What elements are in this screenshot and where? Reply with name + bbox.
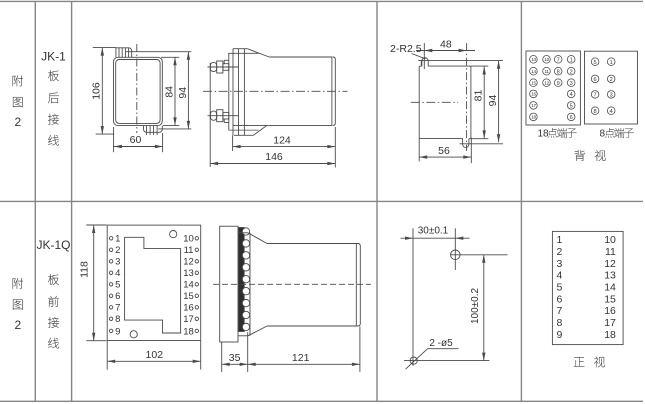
svg-text:12: 12	[544, 80, 549, 85]
svg-text:100±0.2: 100±0.2	[470, 288, 481, 325]
svg-text:2: 2	[557, 246, 563, 258]
svg-text:7: 7	[557, 305, 563, 317]
svg-text:6: 6	[115, 291, 120, 302]
svg-text:15: 15	[183, 291, 194, 302]
svg-text:9: 9	[115, 326, 120, 337]
svg-text:8: 8	[600, 128, 606, 139]
svg-text:118: 118	[78, 261, 90, 278]
svg-text:4: 4	[610, 109, 613, 115]
svg-text:124: 124	[273, 134, 291, 146]
svg-text:1: 1	[570, 57, 573, 63]
svg-text:4: 4	[557, 270, 563, 282]
svg-text:15: 15	[604, 293, 616, 305]
svg-text:6: 6	[594, 77, 597, 83]
svg-text:5: 5	[570, 103, 573, 109]
svg-text:81: 81	[473, 90, 485, 102]
svg-text:16: 16	[183, 303, 194, 314]
svg-text:60: 60	[130, 134, 142, 146]
svg-text:94: 94	[487, 95, 499, 107]
svg-text:2: 2	[115, 245, 120, 256]
svg-text:18: 18	[531, 115, 536, 120]
svg-text:18: 18	[604, 329, 616, 341]
svg-text:15: 15	[531, 80, 536, 85]
svg-text:1: 1	[115, 234, 120, 245]
svg-text:11: 11	[184, 245, 194, 256]
svg-text:16: 16	[531, 92, 536, 97]
svg-text:13: 13	[604, 270, 616, 282]
svg-text:2 -ø5: 2 -ø5	[429, 338, 453, 349]
svg-text:8: 8	[557, 69, 560, 75]
svg-text:6: 6	[557, 293, 563, 305]
svg-text:14: 14	[604, 282, 616, 294]
svg-text:14: 14	[531, 69, 536, 74]
svg-text:13: 13	[531, 57, 536, 62]
svg-text:9: 9	[557, 81, 560, 87]
svg-text:3: 3	[115, 257, 120, 268]
svg-text:121: 121	[292, 352, 310, 364]
svg-text:2-R2.5: 2-R2.5	[390, 43, 422, 55]
svg-text:10: 10	[544, 57, 549, 62]
svg-text:84: 84	[163, 86, 175, 98]
svg-text:5: 5	[115, 280, 120, 291]
svg-text:102: 102	[146, 349, 164, 361]
svg-text:3: 3	[570, 81, 573, 87]
svg-text:12: 12	[183, 257, 194, 268]
svg-text:7: 7	[557, 57, 560, 63]
svg-text:146: 146	[265, 151, 283, 163]
svg-text:106: 106	[91, 82, 103, 100]
svg-text:18: 18	[183, 326, 194, 337]
svg-text:14: 14	[183, 280, 194, 291]
svg-text:3: 3	[610, 93, 613, 99]
svg-text:35: 35	[229, 352, 241, 364]
svg-text:18: 18	[537, 128, 549, 139]
svg-text:2: 2	[14, 115, 21, 129]
svg-text:11: 11	[605, 246, 616, 258]
svg-text:1: 1	[557, 234, 563, 246]
svg-text:4: 4	[570, 92, 573, 98]
svg-text:16: 16	[604, 305, 616, 317]
svg-text:JK-1Q: JK-1Q	[36, 238, 70, 252]
svg-text:6: 6	[570, 115, 573, 121]
svg-text:5: 5	[557, 282, 563, 294]
svg-text:17: 17	[604, 317, 616, 329]
svg-text:56: 56	[438, 145, 450, 157]
svg-text:8: 8	[115, 314, 120, 325]
svg-text:2: 2	[14, 318, 21, 332]
svg-text:11: 11	[544, 69, 549, 74]
svg-text:17: 17	[531, 103, 536, 108]
svg-text:4: 4	[115, 268, 120, 279]
svg-text:2: 2	[610, 77, 613, 83]
svg-text:8: 8	[594, 109, 597, 115]
svg-text:30±0.1: 30±0.1	[418, 225, 449, 236]
svg-text:1: 1	[610, 60, 613, 66]
svg-text:10: 10	[183, 234, 194, 245]
svg-text:JK-1: JK-1	[41, 49, 66, 63]
svg-text:7: 7	[115, 303, 120, 314]
svg-text:17: 17	[183, 314, 194, 325]
svg-text:5: 5	[594, 60, 597, 66]
svg-text:94: 94	[177, 87, 189, 99]
svg-text:9: 9	[557, 329, 563, 341]
svg-text:2: 2	[570, 69, 573, 75]
svg-text:48: 48	[440, 38, 452, 50]
svg-text:12: 12	[604, 258, 616, 270]
svg-text:3: 3	[557, 258, 563, 270]
svg-text:10: 10	[604, 234, 616, 246]
svg-text:13: 13	[183, 268, 194, 279]
svg-text:8: 8	[557, 317, 563, 329]
svg-text:7: 7	[594, 93, 597, 99]
